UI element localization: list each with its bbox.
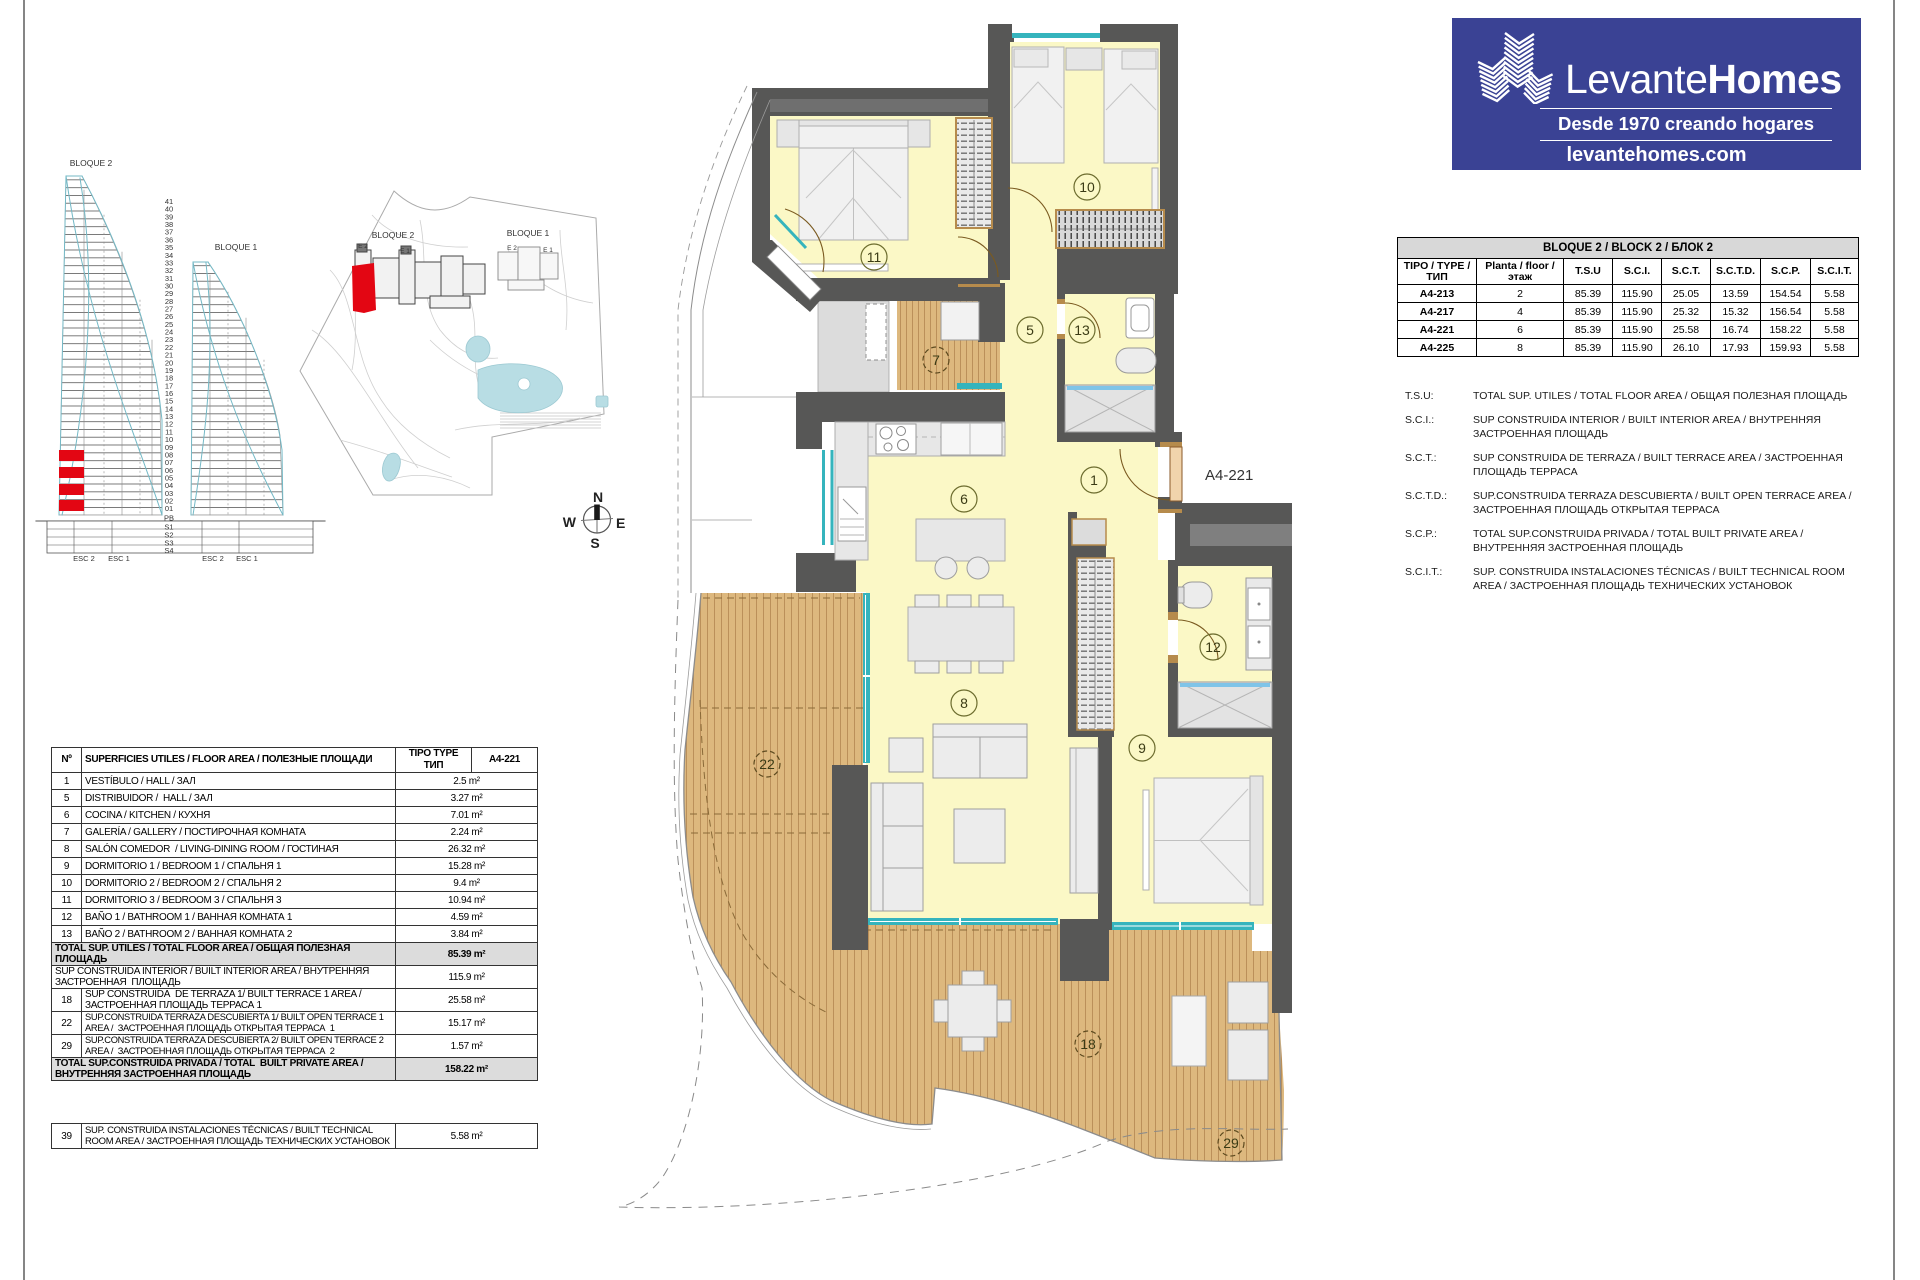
svg-text:BLOQUE 2: BLOQUE 2 (372, 230, 415, 240)
svg-text:ESC 2: ESC 2 (202, 554, 224, 563)
svg-text:E: E (616, 515, 625, 531)
svg-text:01: 01 (165, 504, 173, 513)
svg-text:10: 10 (1079, 179, 1095, 195)
svg-text:ESC 2: ESC 2 (73, 554, 95, 563)
svg-text:13: 13 (1074, 322, 1090, 338)
svg-text:BLOQUE 1: BLOQUE 1 (215, 242, 258, 252)
svg-text:E 1: E 1 (400, 248, 410, 255)
svg-text:E 1: E 1 (543, 247, 553, 254)
svg-text:E 2: E 2 (507, 245, 517, 252)
svg-text:PB: PB (164, 514, 174, 523)
svg-text:1: 1 (1090, 472, 1098, 488)
svg-text:18: 18 (1080, 1036, 1096, 1052)
svg-text:11: 11 (867, 249, 882, 265)
svg-text:S4: S4 (164, 546, 173, 555)
svg-text:6: 6 (960, 491, 968, 507)
svg-text:S: S (590, 535, 599, 551)
svg-text:BLOQUE 2: BLOQUE 2 (70, 158, 113, 168)
svg-text:5: 5 (1026, 322, 1034, 338)
svg-text:BLOQUE 1: BLOQUE 1 (507, 228, 550, 238)
svg-text:E 2: E 2 (358, 243, 368, 250)
svg-text:8: 8 (960, 695, 968, 711)
svg-text:W: W (563, 514, 577, 530)
svg-text:N: N (593, 489, 603, 505)
svg-text:29: 29 (1223, 1135, 1239, 1151)
svg-text:9: 9 (1138, 740, 1146, 756)
svg-text:ESC 1: ESC 1 (108, 554, 130, 563)
svg-text:7: 7 (932, 352, 940, 368)
svg-text:22: 22 (759, 756, 775, 772)
svg-text:ESC 1: ESC 1 (236, 554, 258, 563)
svg-text:12: 12 (1205, 639, 1221, 655)
svg-text:A4-221: A4-221 (1205, 467, 1253, 484)
